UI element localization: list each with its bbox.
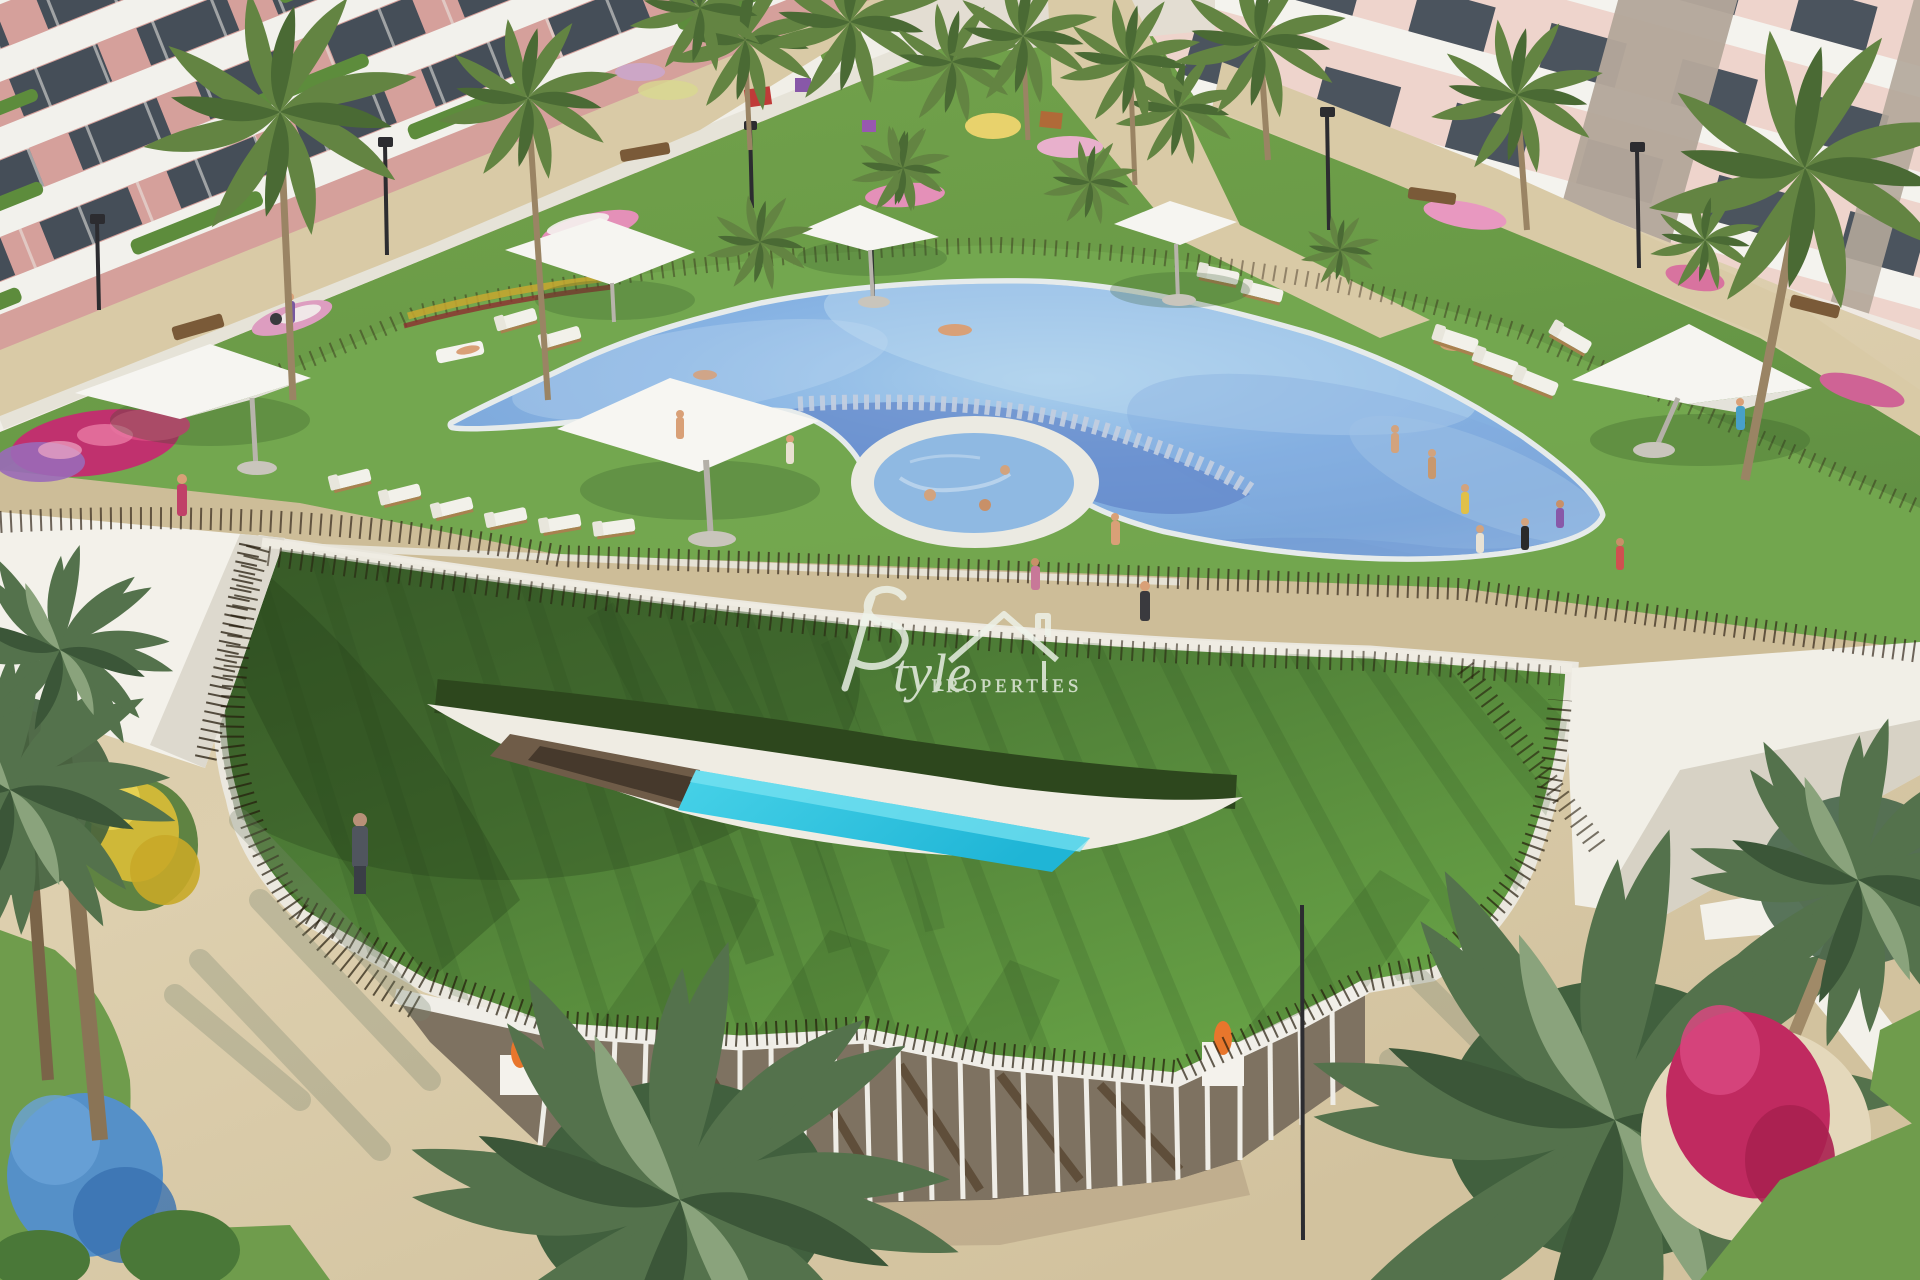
svg-text:PROPERTIES: PROPERTIES [932,676,1083,697]
